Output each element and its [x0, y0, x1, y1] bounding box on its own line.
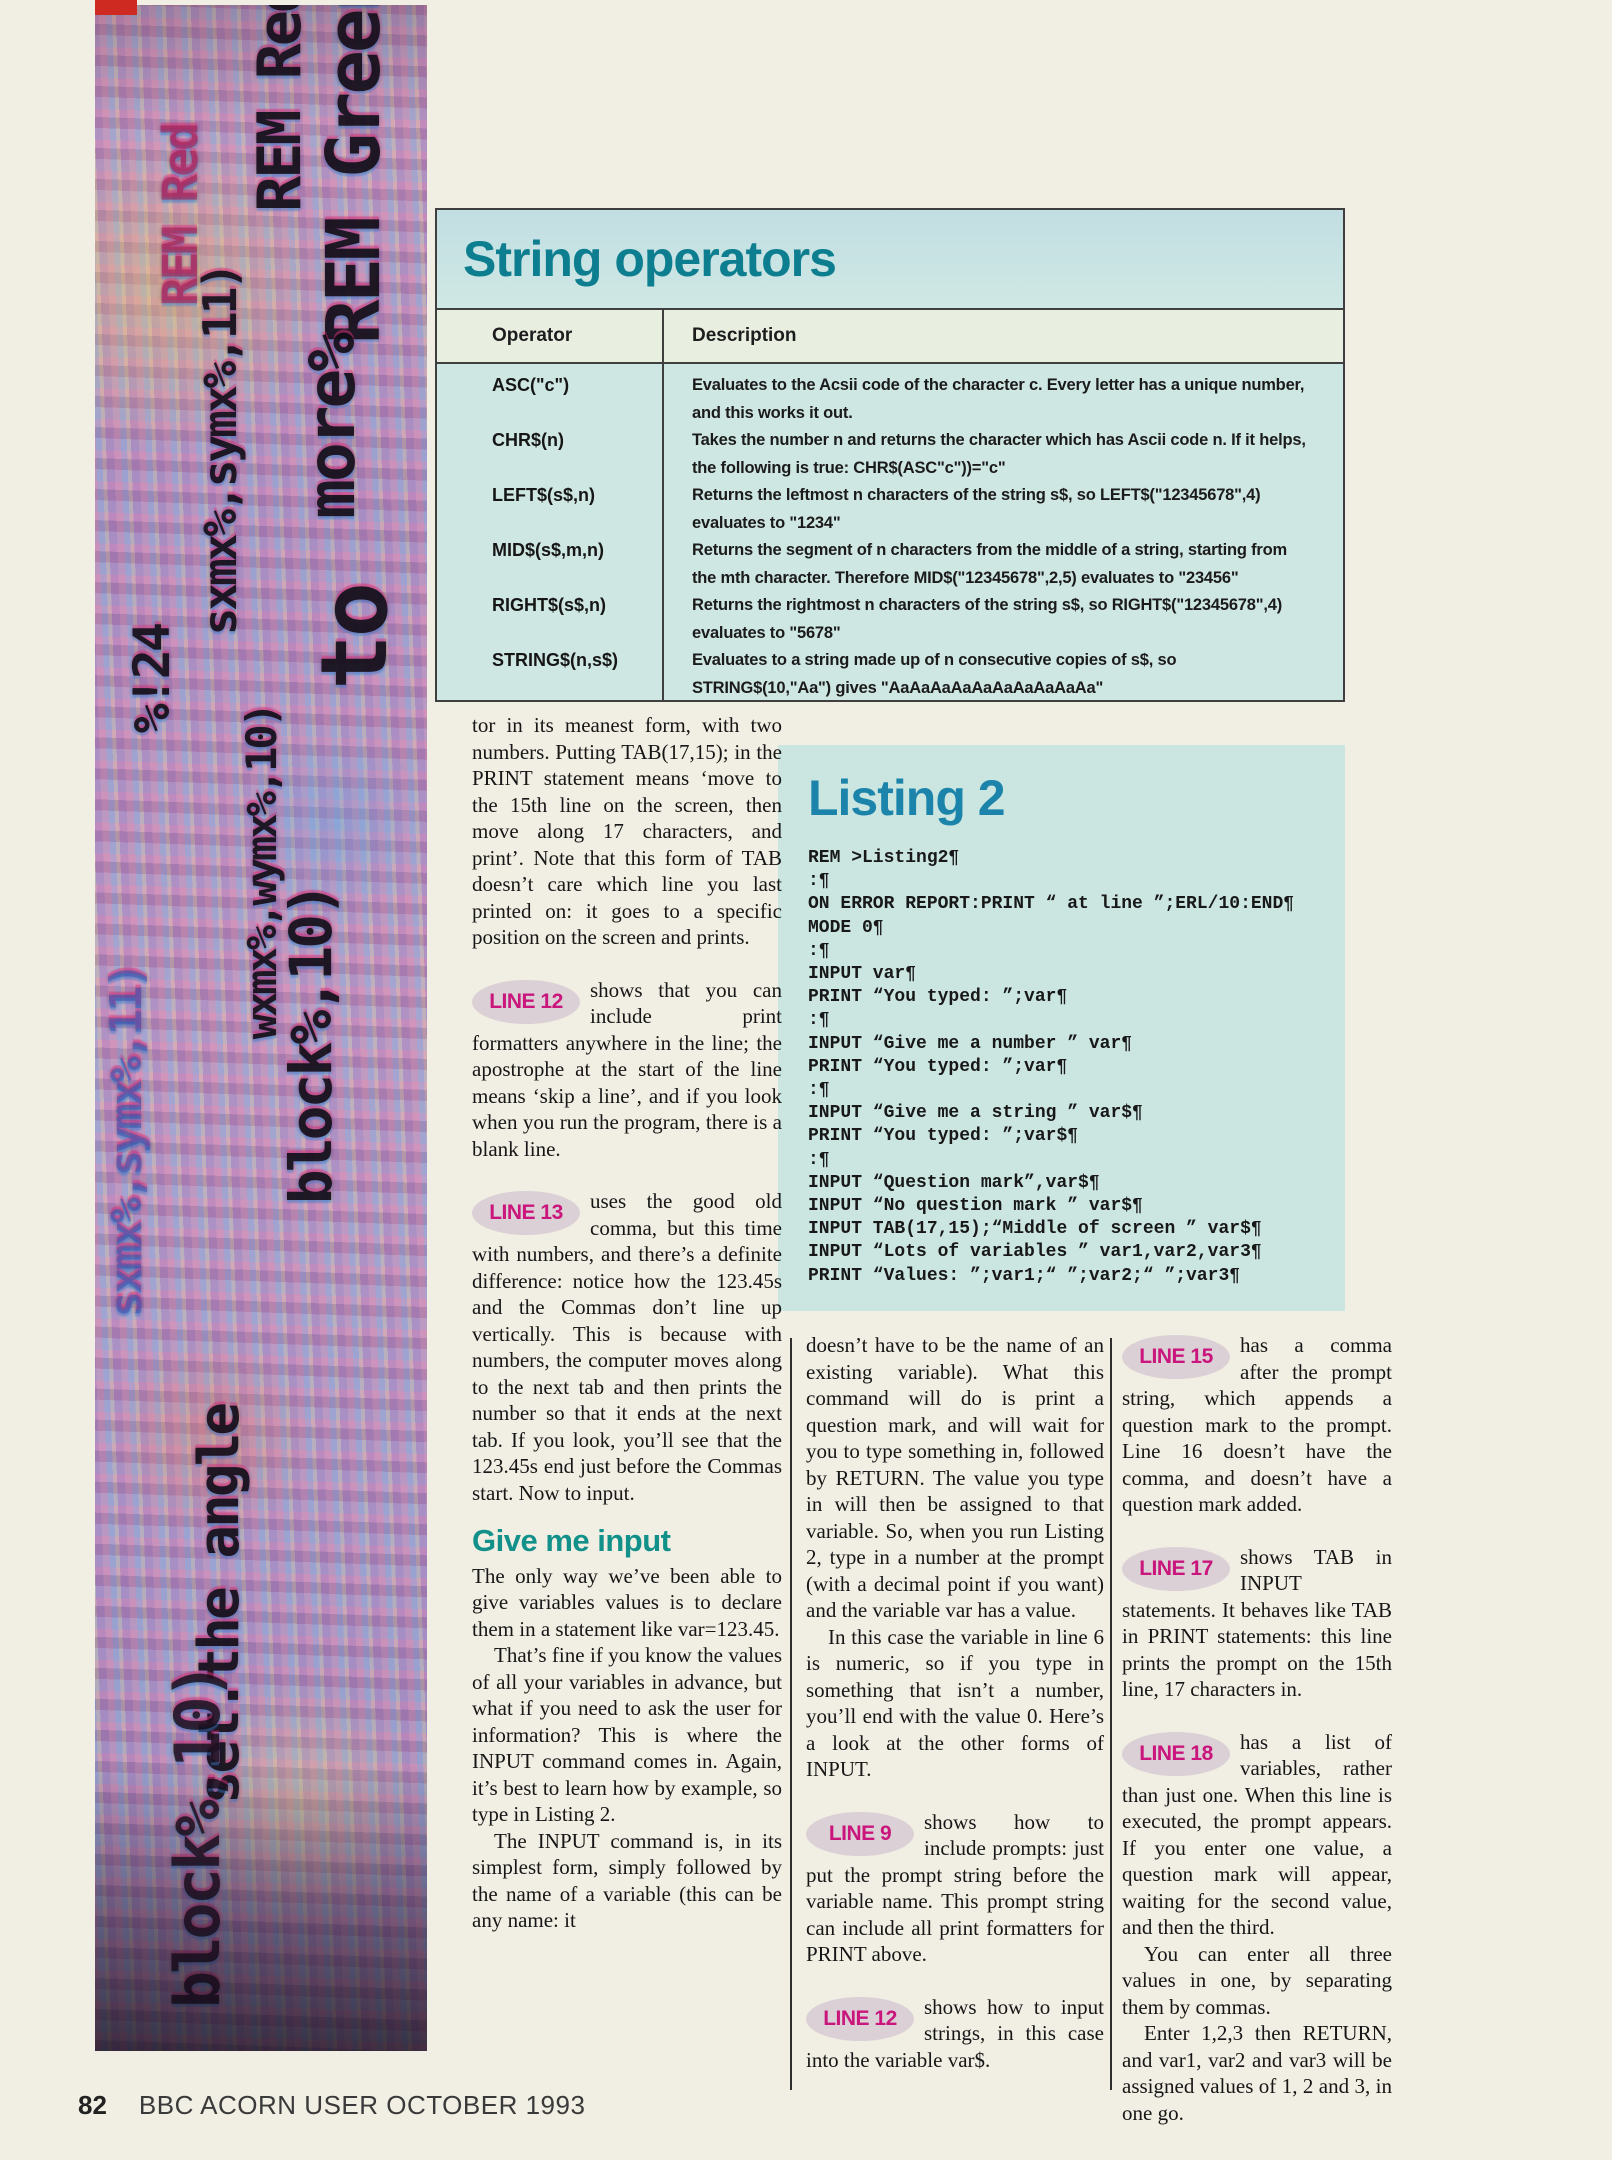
magazine-name: BBC ACORN USER OCTOBER 1993 — [139, 2090, 586, 2121]
paragraph: LINE 12 shows how to input strings, in t… — [806, 1994, 1104, 2074]
paragraph: doesn’t have to be the name of an existi… — [806, 1332, 1104, 1624]
paragraph: You can enter all three values in one, b… — [1122, 1941, 1392, 2021]
description-cell: Evaluates to a string made up of n conse… — [662, 647, 1343, 702]
paragraph: That’s fine if you know the values of al… — [472, 1642, 782, 1828]
strip-glitch-echo: block%,10) — [161, 1665, 234, 2008]
paragraph: LINE 9 shows how to include prompts: jus… — [806, 1809, 1104, 1968]
code-line: INPUT TAB(17,15);“Middle of screen ” var… — [808, 1218, 1345, 1241]
strip-glitch-text: to — [301, 585, 408, 690]
table-title-band: String operators — [437, 210, 1343, 310]
strip-glitch-text: %!24 — [123, 625, 181, 733]
strip-glitch-text: more% — [293, 335, 370, 519]
code-line: :¶ — [808, 1149, 1345, 1172]
line-12-badge: LINE 12 — [472, 980, 580, 1024]
paragraph: In this case the variable in line 6 is n… — [806, 1624, 1104, 1783]
red-corner-mark — [95, 0, 137, 15]
page-footer: 82 BBC ACORN USER OCTOBER 1993 — [78, 2090, 585, 2121]
line-9-badge: LINE 9 — [806, 1812, 914, 1856]
paragraph-text: uses the good old comma, but this time w… — [472, 1189, 782, 1505]
magazine-page: REM Red REM Green more% to sxmx%,symx%,1… — [0, 0, 1612, 2160]
column-header-description: Description — [662, 325, 1343, 347]
column-header-operator: Operator — [437, 325, 662, 347]
strip-glitch-text: sxmx%,symx%,11) — [193, 265, 247, 635]
operator-cell: ASC("c") — [437, 372, 662, 427]
code-line: INPUT “Lots of variables ” var1,var2,var… — [808, 1241, 1345, 1264]
strip-glitch-echo: sxmx%,symx%,11) — [101, 965, 152, 1317]
code-line: PRINT “You typed: ”;var$¶ — [808, 1125, 1345, 1148]
description-cell: Returns the segment of n characters from… — [662, 537, 1343, 592]
description-cell: Returns the rightmost n characters of th… — [662, 592, 1343, 647]
article-column-2: doesn’t have to be the name of an existi… — [806, 1332, 1104, 2073]
operator-cell: STRING$(n,s$) — [437, 647, 662, 702]
code-line: INPUT “Give me a number ” var¶ — [808, 1033, 1345, 1056]
operator-cell: MID$(s$,m,n) — [437, 537, 662, 592]
table-row: ASC("c") Evaluates to the Acsii code of … — [437, 372, 1343, 427]
page-number: 82 — [78, 2090, 107, 2121]
strip-glitch-text: REM Green — [311, 5, 397, 344]
strip-glitch-text: block%,10) — [277, 885, 345, 1204]
table-row: MID$(s$,m,n) Returns the segment of n ch… — [437, 537, 1343, 592]
operator-cell: RIGHT$(s$,n) — [437, 592, 662, 647]
strip-glitch-echo: REM Red — [153, 125, 209, 306]
strip-glitch-text: REM Red — [245, 5, 315, 212]
line-18-badge: LINE 18 — [1122, 1732, 1230, 1776]
operator-cell: CHR$(n) — [437, 427, 662, 482]
table-body: ASC("c") Evaluates to the Acsii code of … — [437, 364, 1343, 700]
paragraph: Enter 1,2,3 then RETURN, and var1, var2 … — [1122, 2020, 1392, 2126]
code-line: INPUT “No question mark ” var$¶ — [808, 1195, 1345, 1218]
code-listing: REM >Listing2¶ :¶ ON ERROR REPORT:PRINT … — [808, 847, 1345, 1288]
strip-glitch-text: set.the angle — [187, 1405, 252, 1804]
code-line: :¶ — [808, 1079, 1345, 1102]
description-cell: Returns the leftmost n characters of the… — [662, 482, 1343, 537]
column-divider — [790, 1338, 792, 2090]
description-cell: Takes the number n and returns the chara… — [662, 427, 1343, 482]
listing-2-box: Listing 2 REM >Listing2¶ :¶ ON ERROR REP… — [778, 745, 1345, 1311]
code-line: MODE 0¶ — [808, 917, 1345, 940]
code-line: PRINT “You typed: ”;var¶ — [808, 1056, 1345, 1079]
description-cell: Evaluates to the Acsii code of the chara… — [662, 372, 1343, 427]
line-17-badge: LINE 17 — [1122, 1547, 1230, 1591]
paragraph: The INPUT command is, in its simplest fo… — [472, 1828, 782, 1934]
string-operators-table: String operators Operator Description AS… — [435, 208, 1345, 702]
paragraph: LINE 17 shows TAB in INPUT statements. I… — [1122, 1544, 1392, 1703]
article-column-3: LINE 15 has a comma after the prompt str… — [1122, 1332, 1392, 2126]
strip-glitch-text: wxmx%,wymx%,10) — [237, 705, 286, 1039]
article-column-1: tor in its meanest form, with two number… — [472, 712, 782, 1934]
code-line: INPUT “Give me a string ” var$¶ — [808, 1102, 1345, 1125]
code-line: REM >Listing2¶ — [808, 847, 1345, 870]
code-line: INPUT var¶ — [808, 963, 1345, 986]
paragraph: LINE 15 has a comma after the prompt str… — [1122, 1332, 1392, 1518]
paragraph: LINE 12 shows that you can include print… — [472, 977, 782, 1163]
table-row: RIGHT$(s$,n) Returns the rightmost n cha… — [437, 592, 1343, 647]
table-column-divider — [662, 310, 664, 700]
operator-cell: LEFT$(s$,n) — [437, 482, 662, 537]
line-12-badge: LINE 12 — [806, 1997, 914, 2041]
listing-title: Listing 2 — [808, 769, 1345, 827]
code-line: INPUT “Question mark”,var$¶ — [808, 1172, 1345, 1195]
table-row: CHR$(n) Takes the number n and returns t… — [437, 427, 1343, 482]
code-line: PRINT “Values: ”;var1;“ ”;var2;“ ”;var3¶ — [808, 1265, 1345, 1288]
code-line: PRINT “You typed: ”;var¶ — [808, 986, 1345, 1009]
paragraph: tor in its meanest form, with two number… — [472, 712, 782, 951]
table-row: LEFT$(s$,n) Returns the leftmost n chara… — [437, 482, 1343, 537]
code-line: :¶ — [808, 1009, 1345, 1032]
paragraph: LINE 13 uses the good old comma, but thi… — [472, 1188, 782, 1506]
section-heading: Give me input — [472, 1528, 782, 1555]
table-row: STRING$(n,s$) Evaluates to a string made… — [437, 647, 1343, 702]
table-header-row: Operator Description — [437, 310, 1343, 364]
decorative-strip: REM Red REM Green more% to sxmx%,symx%,1… — [95, 5, 427, 2051]
paragraph: The only way we’ve been able to give var… — [472, 1563, 782, 1643]
line-15-badge: LINE 15 — [1122, 1335, 1230, 1379]
column-divider — [1110, 1338, 1112, 2090]
table-title: String operators — [463, 230, 836, 288]
line-13-badge: LINE 13 — [472, 1191, 580, 1235]
paragraph: LINE 18 has a list of variables, rather … — [1122, 1729, 1392, 1941]
code-line: :¶ — [808, 870, 1345, 893]
code-line: ON ERROR REPORT:PRINT “ at line ”;ERL/10… — [808, 893, 1345, 916]
code-line: :¶ — [808, 940, 1345, 963]
